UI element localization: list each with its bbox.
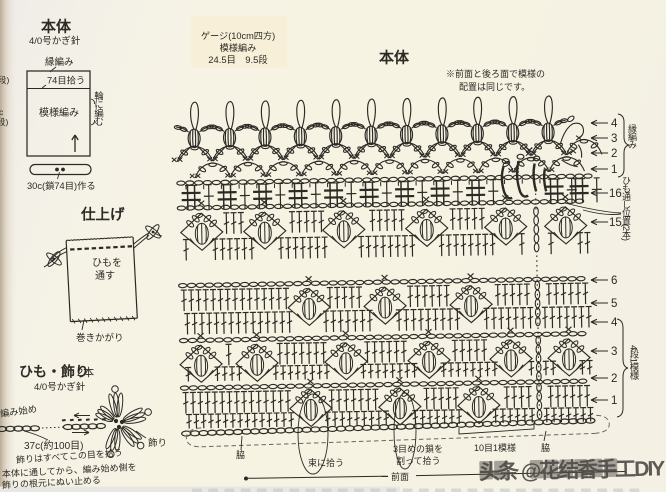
- svg-text:割って拾う: 割って拾う: [396, 455, 441, 466]
- svg-text:4: 4: [611, 118, 618, 130]
- svg-text:10目1模様: 10目1模様: [474, 442, 516, 453]
- svg-text:4/0号かぎ針: 4/0号かぎ針: [34, 381, 86, 393]
- svg-text:2: 2: [611, 373, 617, 385]
- svg-text:2: 2: [611, 148, 617, 160]
- svg-text:4: 4: [611, 317, 618, 329]
- svg-text:巻きかがり: 巻きかがり: [76, 332, 124, 344]
- svg-text:本体: 本体: [379, 49, 410, 67]
- svg-text:24.5目 9.5段: 24.5目 9.5段: [208, 54, 267, 65]
- svg-text:束に拾う: 束に拾う: [308, 457, 344, 468]
- svg-text:縁編み: 縁編み: [45, 56, 74, 68]
- svg-text:段): 段): [0, 75, 10, 85]
- svg-text:模様編み: 模様編み: [39, 106, 79, 119]
- svg-text:头条 @花结香手工DIY: 头条 @花结香手工DIY: [479, 456, 666, 484]
- svg-text:輪に編む: 輪に編む: [92, 90, 104, 126]
- svg-text:3: 3: [611, 133, 617, 145]
- svg-text:1: 1: [611, 164, 617, 176]
- svg-text:2本: 2本: [77, 365, 94, 379]
- svg-text:前面: 前面: [391, 471, 409, 482]
- svg-text:配置は同じです。: 配置は同じです。: [459, 82, 530, 92]
- svg-text:4段1模様: 4段1模様: [628, 345, 640, 380]
- svg-text:30c(鎖74目)作る: 30c(鎖74目)作る: [27, 180, 96, 191]
- svg-text:通す: 通す: [95, 270, 115, 282]
- svg-text:6: 6: [611, 275, 617, 287]
- svg-text:3目めの鎖を: 3目めの鎖を: [393, 443, 443, 454]
- svg-text:1: 1: [611, 395, 617, 407]
- svg-text:仕上げ: 仕上げ: [80, 206, 125, 224]
- svg-text:模様編み: 模様編み: [220, 42, 257, 53]
- svg-text:74目拾う: 74目拾う: [47, 75, 85, 86]
- svg-text:ひもを: ひもを: [92, 257, 122, 269]
- svg-text:脇: 脇: [236, 450, 245, 460]
- svg-text:5: 5: [611, 298, 617, 310]
- svg-text:16: 16: [609, 188, 622, 200]
- svg-text:3: 3: [611, 346, 617, 358]
- svg-text:ひも通し位置(2本): ひも通し位置(2本): [621, 176, 631, 241]
- svg-text:15: 15: [609, 217, 622, 229]
- svg-text:4/0号かぎ針: 4/0号かぎ針: [29, 35, 81, 47]
- svg-text:※前面と後ろ面で模様の: ※前面と後ろ面で模様の: [446, 68, 545, 79]
- svg-text:ゲージ(10cm四方): ゲージ(10cm四方): [201, 30, 275, 41]
- svg-text:脇: 脇: [541, 443, 550, 453]
- svg-text:段): 段): [0, 117, 9, 127]
- svg-text:本体: 本体: [41, 18, 72, 36]
- svg-text:縁編み: 縁編み: [627, 123, 637, 149]
- svg-text:飾り: 飾り: [148, 437, 167, 449]
